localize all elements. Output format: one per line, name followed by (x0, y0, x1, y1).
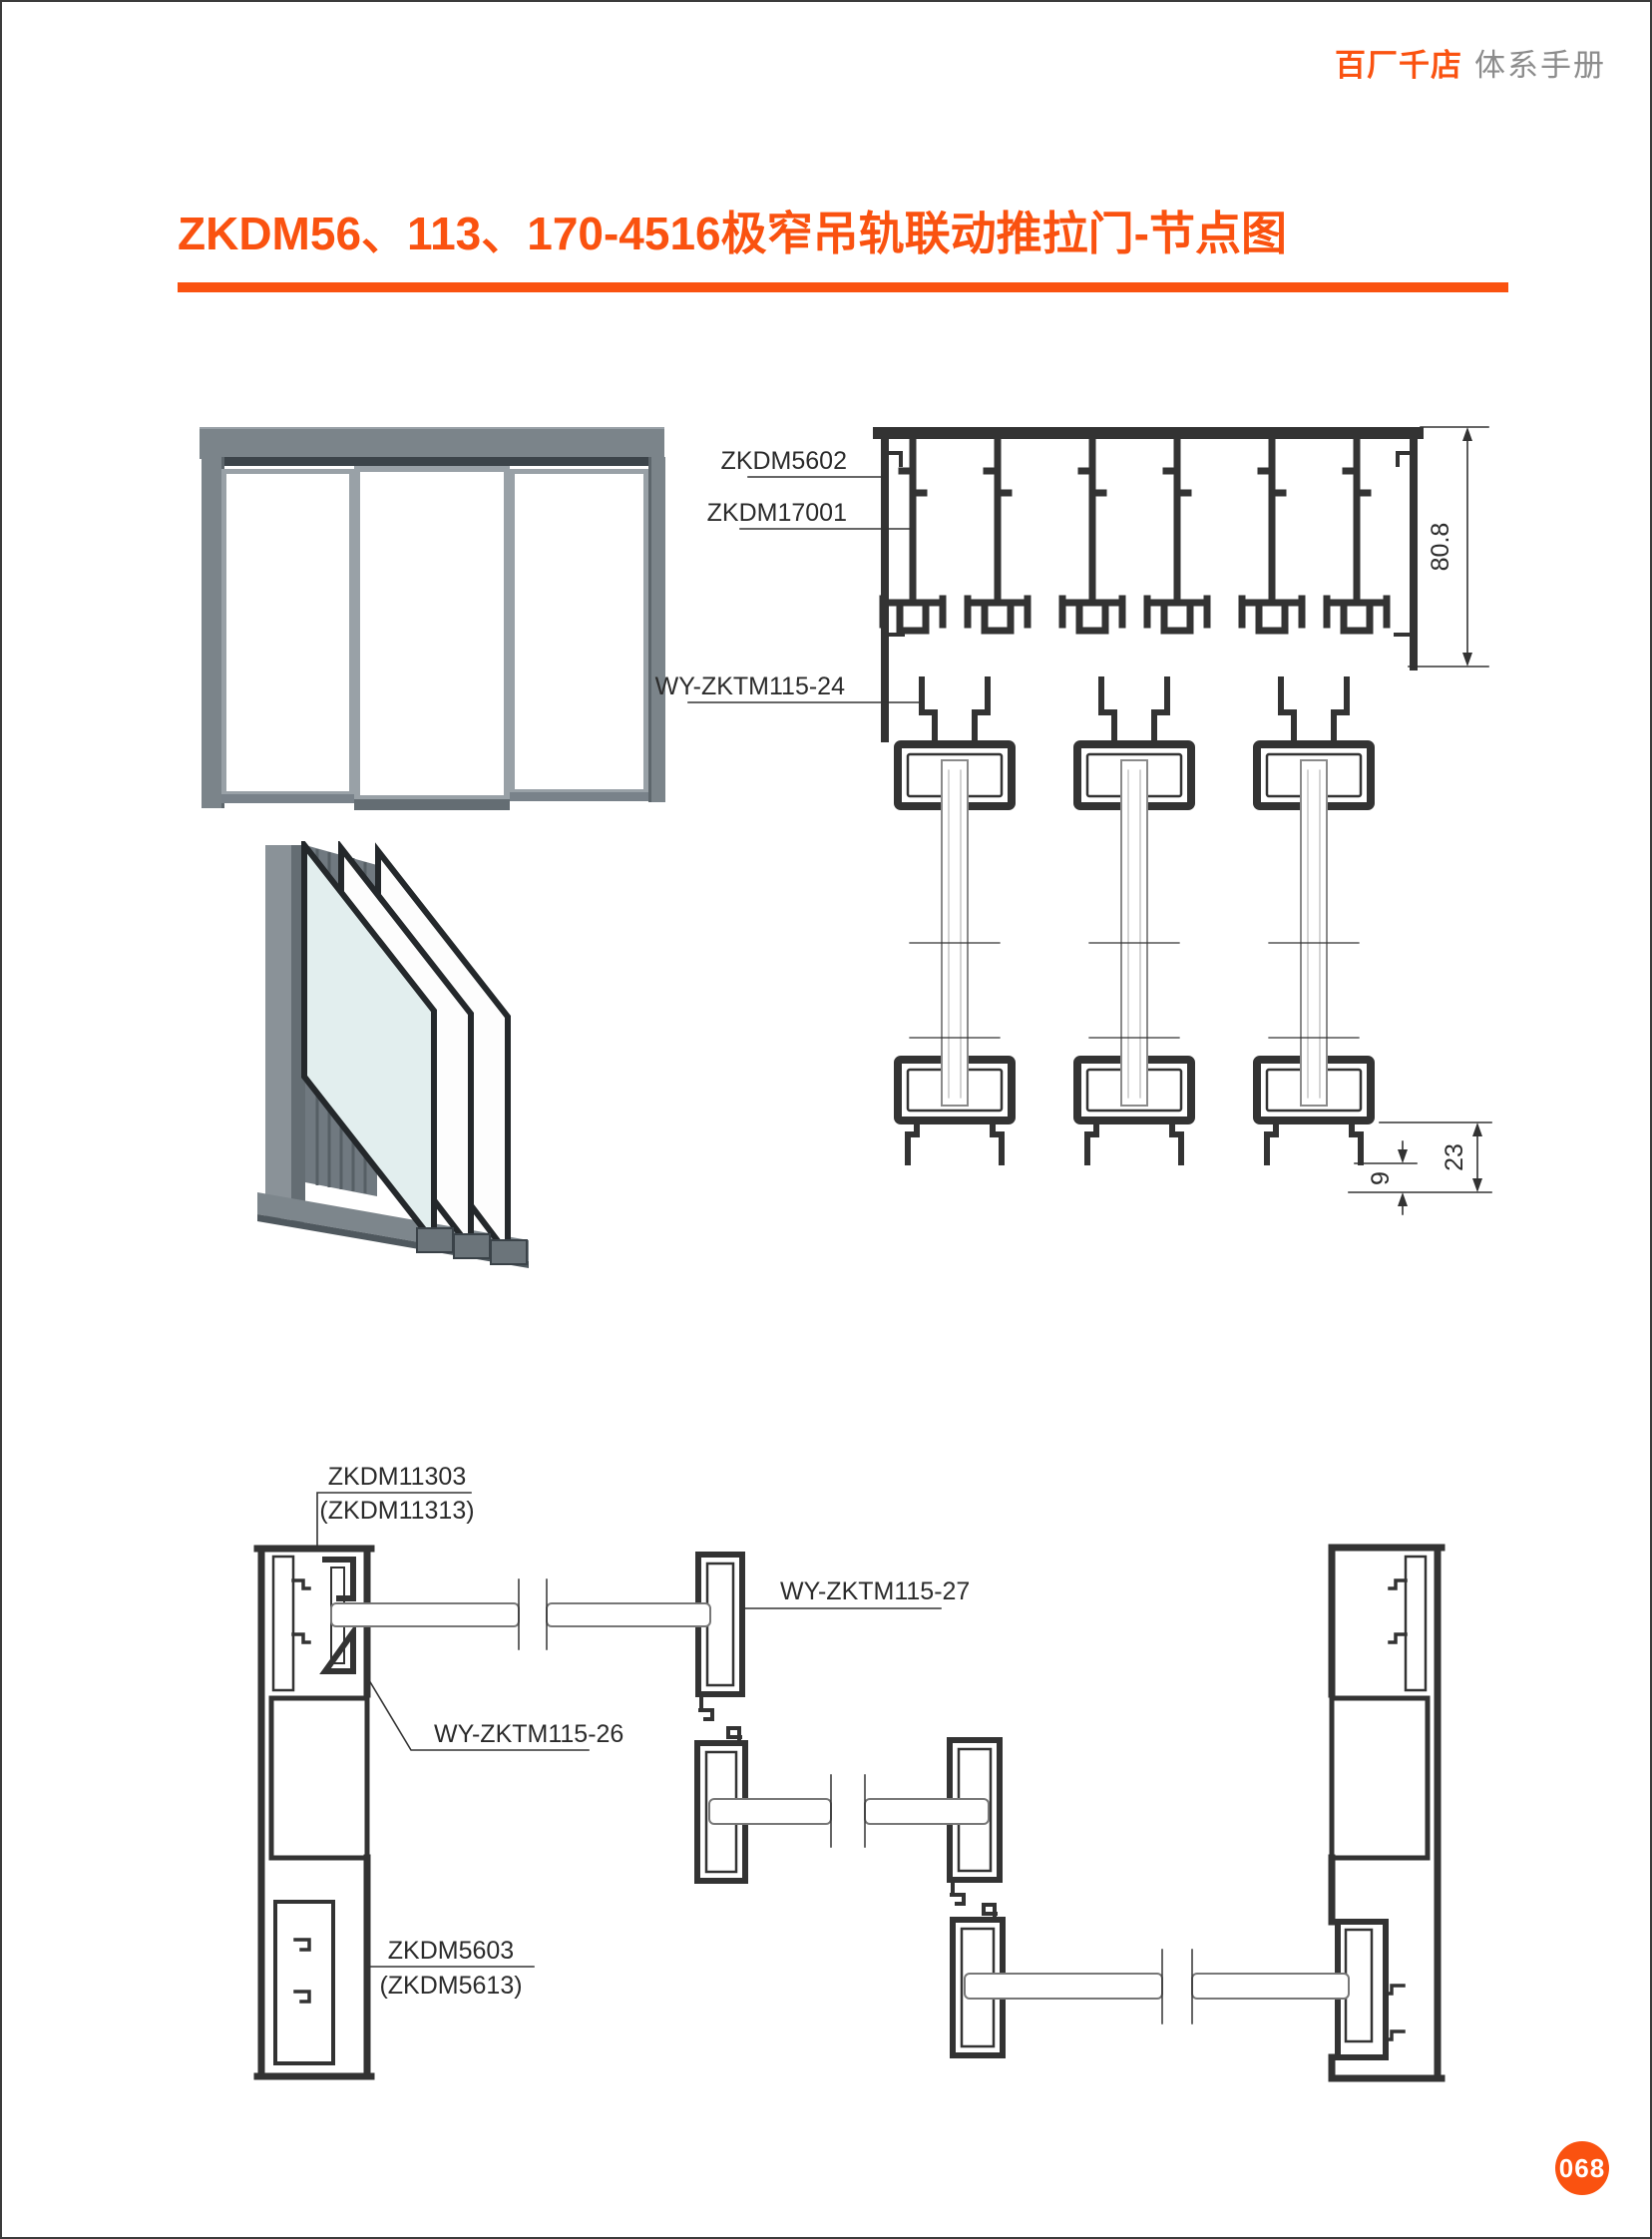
page-number: 068 (1559, 2153, 1605, 2184)
right-jamb-profile (1332, 1548, 1442, 2078)
technical-drawings: ZKDM5602 ZKDM17001 WY-ZKTM115-24 80.8 23… (0, 0, 1652, 2239)
glass-row-3 (965, 1950, 1349, 2023)
door-leaf-section (1301, 760, 1327, 1106)
break-lines (831, 1775, 865, 1847)
break-lines (1162, 1950, 1192, 2023)
left-jamb-profile (257, 1549, 371, 2076)
glass-row-1 (331, 1579, 710, 1649)
track-divider-stems (883, 439, 1387, 631)
label-hanger: WY-ZKTM115-24 (655, 672, 845, 700)
dim-text-track-height: 80.8 (1427, 523, 1454, 572)
label-carrier: WY-ZKTM115-26 (434, 1720, 623, 1748)
label-jamb-top: ZKDM11303 (328, 1463, 467, 1491)
label-inner-profile: ZKDM17001 (707, 499, 847, 527)
hanger-assembly (1257, 679, 1371, 1162)
label-jamb-bottom-alt: (ZKDM5613) (379, 1972, 522, 2000)
break-lines (519, 1579, 547, 1649)
top-section-drawing (688, 427, 1491, 1214)
hanger-assembly (1077, 679, 1191, 1162)
interlock-profile-2 (950, 1740, 1003, 2055)
dim-text-guide-gap: 9 (1367, 1171, 1395, 1185)
label-interlock: WY-ZKTM115-27 (780, 1577, 970, 1605)
label-jamb-bottom: ZKDM5603 (388, 1937, 514, 1965)
dimension-floor-gap (1349, 1122, 1491, 1214)
door-leaf-section (1121, 760, 1147, 1106)
label-jamb-top-alt: (ZKDM11313) (319, 1497, 474, 1525)
door-leaf-section (942, 760, 968, 1106)
label-track-profile: ZKDM5602 (721, 447, 847, 475)
dim-text-floor-clearance: 23 (1441, 1143, 1468, 1171)
manual-page: 百厂千店 体系手册 ZKDM56、113、170-4516极窄吊轨联动推拉门-节… (0, 0, 1652, 2239)
hanger-assembly (898, 679, 1012, 1162)
page-number-badge: 068 (1555, 2141, 1609, 2195)
